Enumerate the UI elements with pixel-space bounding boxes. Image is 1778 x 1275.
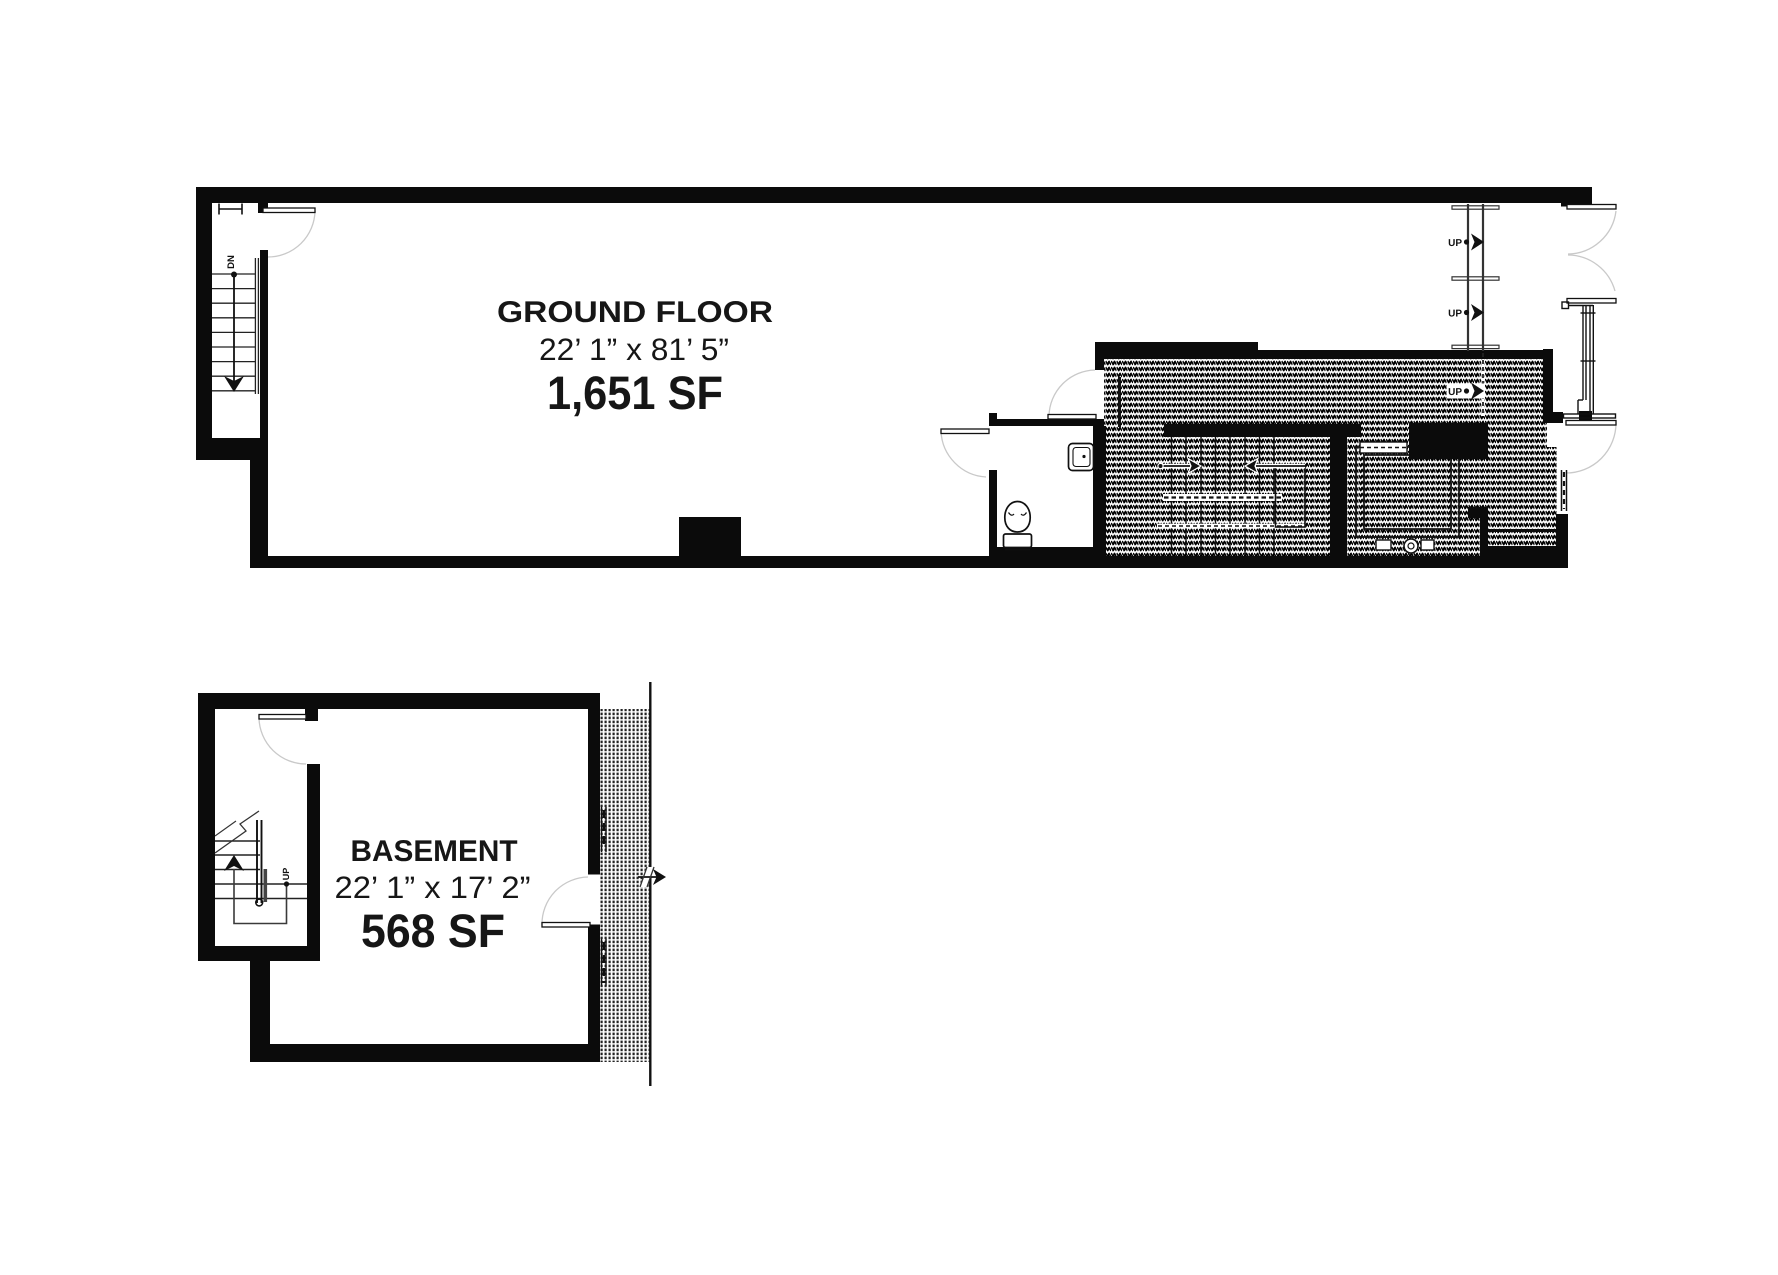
svg-text:BASEMENT: BASEMENT (351, 835, 518, 868)
svg-text:22’ 1” x 17’ 2”: 22’ 1” x 17’ 2” (335, 870, 531, 905)
svg-text:22’ 1” x 81’ 5”: 22’ 1” x 81’ 5” (539, 332, 729, 367)
svg-text:DN: DN (226, 255, 237, 269)
svg-text:UP: UP (1448, 309, 1462, 320)
svg-text:UP: UP (1448, 238, 1462, 249)
svg-text:GROUND FLOOR: GROUND FLOOR (497, 296, 773, 329)
svg-text:UP: UP (281, 868, 291, 881)
svg-text:1,651 SF: 1,651 SF (547, 366, 723, 419)
svg-text:568 SF: 568 SF (361, 904, 505, 957)
svg-text:UP: UP (1448, 387, 1462, 398)
